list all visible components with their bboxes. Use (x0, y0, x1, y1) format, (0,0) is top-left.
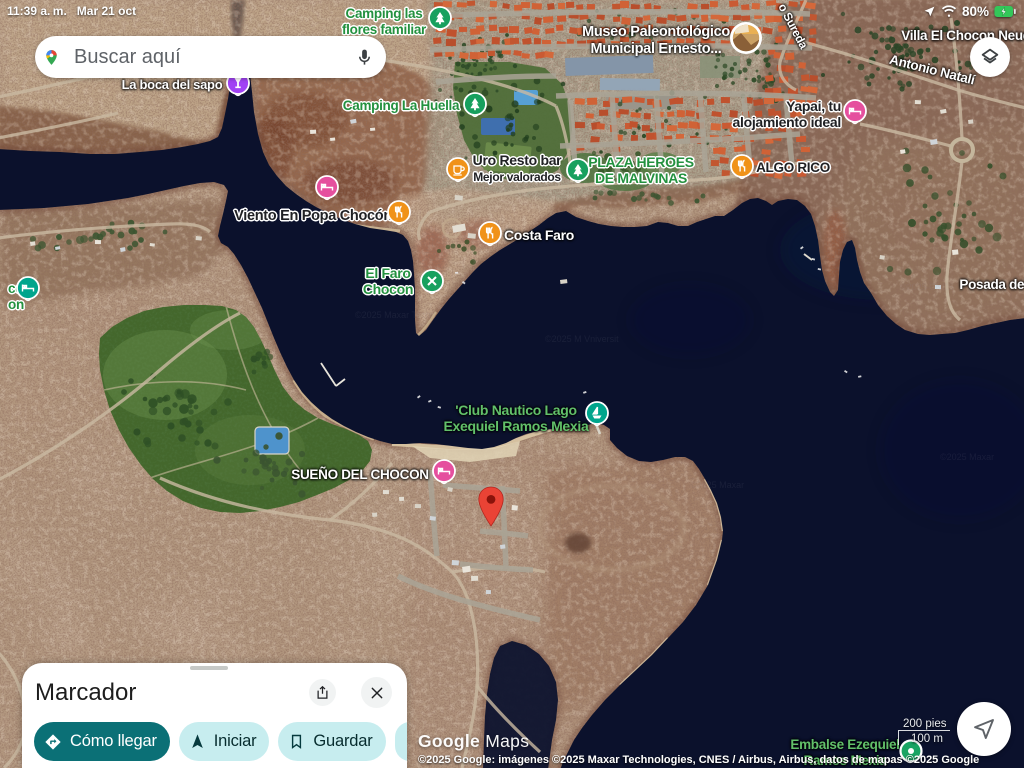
svg-text:©2025 CNES: ©2025 CNES (900, 282, 954, 292)
svg-text:©2025 Maxar: ©2025 Maxar (940, 452, 994, 462)
svg-text:©2025 Maxar Techn: ©2025 Maxar Techn (355, 310, 436, 320)
svg-text:©2025: ©2025 (620, 87, 647, 97)
svg-text:©2025 Maxar: ©2025 Maxar (690, 480, 744, 490)
svg-text:©2025 M Vniversit: ©2025 M Vniversit (545, 334, 619, 344)
